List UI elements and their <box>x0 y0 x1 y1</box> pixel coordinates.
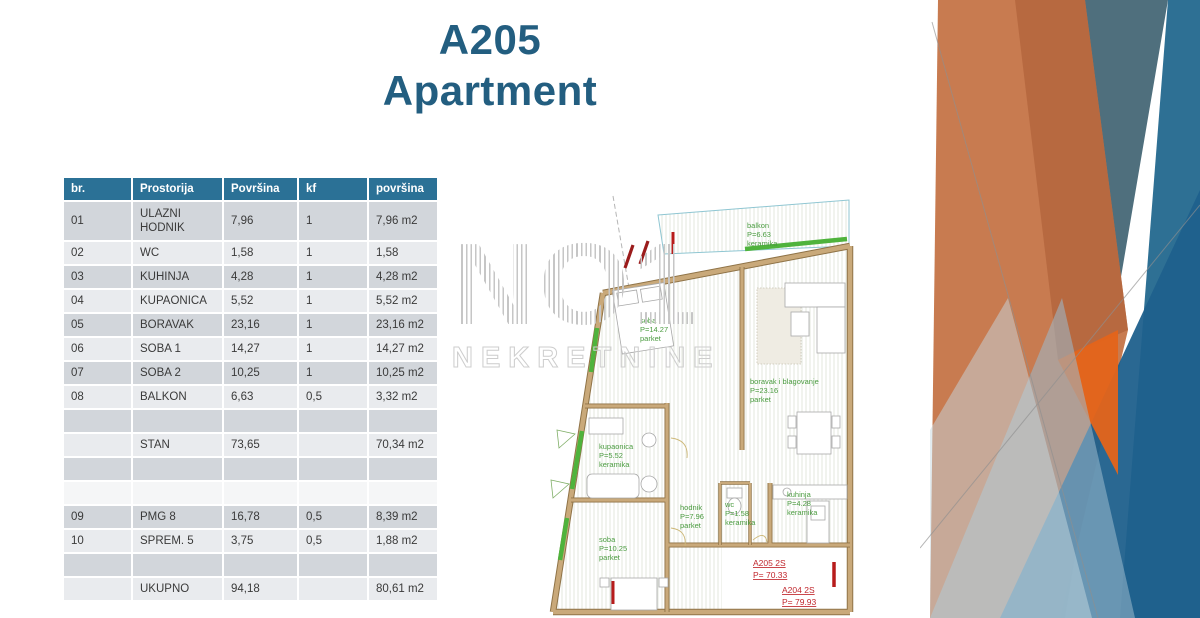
table-row: 03KUHINJA4,2814,28 m2 <box>64 266 437 288</box>
table-cell: 7,96 <box>224 202 297 240</box>
table-cell: 14,27 <box>224 338 297 360</box>
table-row: UKUPNO94,1880,61 m2 <box>64 578 437 600</box>
table-row: 09PMG 816,780,58,39 m2 <box>64 506 437 528</box>
table-cell: BORAVAK <box>133 314 222 336</box>
room-label-kupaonica: kupaonica <box>599 442 634 451</box>
room-label-boravak: parket <box>750 395 772 404</box>
table-cell: 1 <box>299 242 367 264</box>
area-table-body: 01ULAZNI HODNIK7,9617,96 m202WC1,5811,58… <box>64 202 437 600</box>
page-title: A205 Apartment <box>300 14 680 116</box>
apartment-label-a205: A205 2S <box>753 558 786 568</box>
table-cell <box>299 458 367 480</box>
slide: A205 Apartment br. Prostorija Površina k… <box>0 0 1200 618</box>
table-row <box>64 554 437 576</box>
room-label-hodnik: P=7.96 <box>680 512 704 521</box>
table-cell: 70,34 m2 <box>369 434 437 456</box>
table-cell: 23,16 m2 <box>369 314 437 336</box>
room-label-kupaonica: keramika <box>599 460 630 469</box>
room-label-wc: P=1.58 <box>725 509 749 518</box>
table-cell: 23,16 <box>224 314 297 336</box>
table-cell: 05 <box>64 314 131 336</box>
table-cell: 07 <box>64 362 131 384</box>
table-cell <box>299 578 367 600</box>
table-cell: ULAZNI HODNIK <box>133 202 222 240</box>
apartment-label-a205: P= 70.33 <box>753 570 788 580</box>
table-cell: 06 <box>64 338 131 360</box>
table-row <box>64 458 437 480</box>
table-cell: 1 <box>299 202 367 240</box>
table-cell: BALKON <box>133 386 222 408</box>
room-label-soba-2: soba <box>599 535 616 544</box>
table-cell: 09 <box>64 506 131 528</box>
table-cell: PMG 8 <box>133 506 222 528</box>
table-cell: 0,5 <box>299 386 367 408</box>
table-cell: 5,52 <box>224 290 297 312</box>
table-cell <box>64 554 131 576</box>
table-cell: 02 <box>64 242 131 264</box>
table-cell: 1,88 m2 <box>369 530 437 552</box>
table-cell: 7,96 m2 <box>369 202 437 240</box>
table-cell <box>64 578 131 600</box>
table-row: 02WC1,5811,58 <box>64 242 437 264</box>
room-label-soba-1: soba <box>640 316 657 325</box>
table-cell: 10 <box>64 530 131 552</box>
title-line-2: Apartment <box>300 65 680 116</box>
table-row: 01ULAZNI HODNIK7,9617,96 m2 <box>64 202 437 240</box>
table-cell: 4,28 <box>224 266 297 288</box>
table-cell <box>369 410 437 432</box>
table-cell: 5,52 m2 <box>369 290 437 312</box>
header-povrsina: Površina <box>224 178 297 200</box>
table-cell: STAN <box>133 434 222 456</box>
table-cell: 80,61 m2 <box>369 578 437 600</box>
table-cell <box>299 554 367 576</box>
title-line-1: A205 <box>300 14 680 65</box>
header-kf: kf <box>299 178 367 200</box>
table-cell: 10,25 m2 <box>369 362 437 384</box>
header-br: br. <box>64 178 131 200</box>
table-cell: 6,63 <box>224 386 297 408</box>
room-label-hodnik: parket <box>680 521 702 530</box>
table-cell: 04 <box>64 290 131 312</box>
table-cell <box>224 458 297 480</box>
table-cell: 1,58 <box>369 242 437 264</box>
room-label-kuhinja: keramika <box>787 508 818 517</box>
apartment-label-a204: A204 2S <box>782 585 815 595</box>
table-cell <box>299 410 367 432</box>
table-cell: KUHINJA <box>133 266 222 288</box>
table-cell: 8,39 m2 <box>369 506 437 528</box>
table-cell <box>224 482 297 504</box>
room-label-boravak: P=23.16 <box>750 386 778 395</box>
table-row: 08BALKON6,630,53,32 m2 <box>64 386 437 408</box>
table-row: 04KUPAONICA5,5215,52 m2 <box>64 290 437 312</box>
table-row <box>64 482 437 504</box>
table-cell: 0,5 <box>299 530 367 552</box>
table-cell: 1 <box>299 362 367 384</box>
room-label-wc: keramika <box>725 518 756 527</box>
room-label-boravak: boravak i blagovanje <box>750 377 819 386</box>
room-label-kuhinja: P=4.28 <box>787 499 811 508</box>
table-cell <box>64 482 131 504</box>
table-cell <box>299 434 367 456</box>
room-label-soba-1: parket <box>640 334 662 343</box>
table-cell: SPREM. 5 <box>133 530 222 552</box>
table-cell <box>369 482 437 504</box>
table-row: 07SOBA 210,25110,25 m2 <box>64 362 437 384</box>
room-label-hodnik: hodnik <box>680 503 702 512</box>
table-header-row: br. Prostorija Površina kf površina <box>64 178 437 200</box>
table-cell: SOBA 1 <box>133 338 222 360</box>
table-cell: 4,28 m2 <box>369 266 437 288</box>
table-cell: 0,5 <box>299 506 367 528</box>
table-row <box>64 410 437 432</box>
table-cell: UKUPNO <box>133 578 222 600</box>
table-cell: 1 <box>299 290 367 312</box>
room-label-balkon: balkon <box>747 221 769 230</box>
table-cell: 1 <box>299 338 367 360</box>
room-label-balkon: P=6.63 <box>747 230 771 239</box>
table-cell: WC <box>133 242 222 264</box>
table-cell <box>369 458 437 480</box>
construction-line <box>613 196 629 288</box>
table-row: 06SOBA 114,27114,27 m2 <box>64 338 437 360</box>
table-cell <box>133 410 222 432</box>
table-cell <box>224 410 297 432</box>
table-cell: 03 <box>64 266 131 288</box>
table-cell <box>133 458 222 480</box>
header-povrsina-result: površina <box>369 178 437 200</box>
table-cell: KUPAONICA <box>133 290 222 312</box>
table-cell <box>224 554 297 576</box>
room-label-kupaonica: P=5.52 <box>599 451 623 460</box>
decoration-graphic <box>920 0 1200 618</box>
table-cell <box>299 482 367 504</box>
table-cell: 1 <box>299 314 367 336</box>
table-cell: 01 <box>64 202 131 240</box>
table-cell <box>369 554 437 576</box>
table-cell: 1 <box>299 266 367 288</box>
table-row: 10SPREM. 53,750,51,88 m2 <box>64 530 437 552</box>
table-cell: 3,75 <box>224 530 297 552</box>
room-label-soba-2: P=10.25 <box>599 544 627 553</box>
table-cell <box>64 458 131 480</box>
table-cell: 1,58 <box>224 242 297 264</box>
table-cell: 16,78 <box>224 506 297 528</box>
room-label-soba-1: P=14.27 <box>640 325 668 334</box>
apartment-label-a204: P= 79.93 <box>782 597 817 607</box>
table-cell <box>133 554 222 576</box>
room-label-wc: wc <box>724 500 734 509</box>
table-row: STAN73,6570,34 m2 <box>64 434 437 456</box>
room-label-soba-2: parket <box>599 553 621 562</box>
table-row: 05BORAVAK23,16123,16 m2 <box>64 314 437 336</box>
table-cell: 94,18 <box>224 578 297 600</box>
table-cell: 10,25 <box>224 362 297 384</box>
table-cell <box>133 482 222 504</box>
floor-plan: balkonP=6.63keramikasobaP=14.27parketbor… <box>545 188 855 618</box>
table-cell: 73,65 <box>224 434 297 456</box>
room-area-table: br. Prostorija Površina kf površina 01UL… <box>62 176 439 602</box>
table-cell <box>64 410 131 432</box>
table-cell: 14,27 m2 <box>369 338 437 360</box>
header-prostorija: Prostorija <box>133 178 222 200</box>
room-label-kuhinja: kuhinja <box>787 490 812 499</box>
table-cell: 3,32 m2 <box>369 386 437 408</box>
table-cell: 08 <box>64 386 131 408</box>
room-label-balkon: keramika <box>747 239 778 248</box>
table-cell <box>64 434 131 456</box>
table-cell: SOBA 2 <box>133 362 222 384</box>
